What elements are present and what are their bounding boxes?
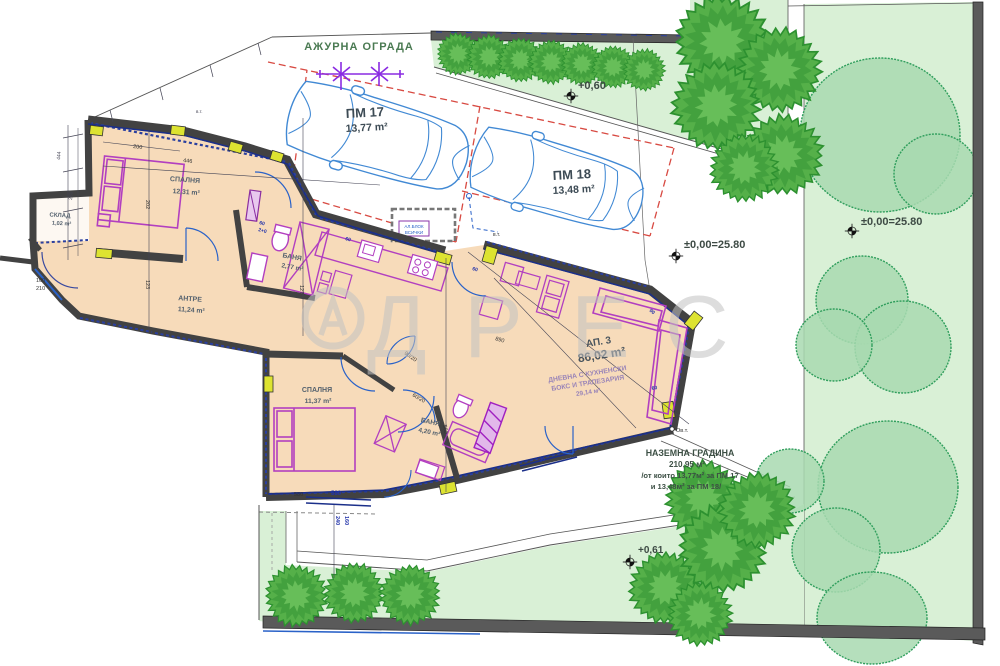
svg-text:+0,60: +0,60 xyxy=(578,80,606,92)
svg-text:13,77 m²: 13,77 m² xyxy=(345,121,388,135)
svg-text:±0,00=25.80: ±0,00=25.80 xyxy=(684,239,745,251)
svg-text:240: 240 xyxy=(334,516,340,525)
svg-text:160: 160 xyxy=(343,516,349,525)
svg-text:НАЗЕМНА ГРАДИНА: НАЗЕМНА ГРАДИНА xyxy=(646,448,735,458)
svg-text:100: 100 xyxy=(36,278,45,284)
svg-text:210,95 м²: 210,95 м² xyxy=(669,460,705,469)
svg-text:580: 580 xyxy=(331,491,342,497)
svg-text:444: 444 xyxy=(56,151,63,160)
svg-text:АЖУРНА ОГРАДА: АЖУРНА ОГРАДА xyxy=(304,41,414,53)
svg-text:в.т.: в.т. xyxy=(493,232,500,238)
svg-text:Р: Р xyxy=(464,277,523,376)
svg-text:СПАЛНЯ: СПАЛНЯ xyxy=(302,387,332,394)
svg-text:202: 202 xyxy=(144,200,150,209)
svg-text:и 13,48м² за ПМ 18/: и 13,48м² за ПМ 18/ xyxy=(651,482,722,491)
svg-text:580: 580 xyxy=(294,492,303,498)
svg-text:446: 446 xyxy=(183,158,193,165)
svg-text:АЛ.БЛОК: АЛ.БЛОК xyxy=(404,224,424,229)
svg-text:ПМ 17: ПМ 17 xyxy=(345,104,384,121)
svg-text:Ов.т.: Ов.т. xyxy=(676,428,689,434)
svg-text:Е: Е xyxy=(571,277,630,376)
svg-text:в.т.: в.т. xyxy=(196,109,202,114)
svg-text:СКЛАД: СКЛАД xyxy=(49,212,71,219)
svg-text:+0,61: +0,61 xyxy=(638,545,664,556)
svg-text:123: 123 xyxy=(144,280,150,289)
svg-text:ПМ 18: ПМ 18 xyxy=(552,166,591,183)
svg-text:127: 127 xyxy=(298,285,304,294)
svg-text:210: 210 xyxy=(36,286,45,292)
svg-text:1,02 m²: 1,02 m² xyxy=(52,220,72,228)
svg-text:/от които 13,77м² за ПМ 17: /от които 13,77м² за ПМ 17 xyxy=(641,471,738,480)
svg-text:Д: Д xyxy=(367,277,427,376)
svg-text:±0,00=25.80: ±0,00=25.80 xyxy=(861,216,922,228)
svg-text:11,37 m²: 11,37 m² xyxy=(305,398,333,405)
svg-text:С: С xyxy=(665,277,729,376)
svg-text:13,48 m²: 13,48 m² xyxy=(552,183,595,197)
svg-text:260: 260 xyxy=(68,191,75,200)
svg-text:200: 200 xyxy=(133,144,143,151)
svg-text:ВСИЧКИ: ВСИЧКИ xyxy=(405,230,423,235)
